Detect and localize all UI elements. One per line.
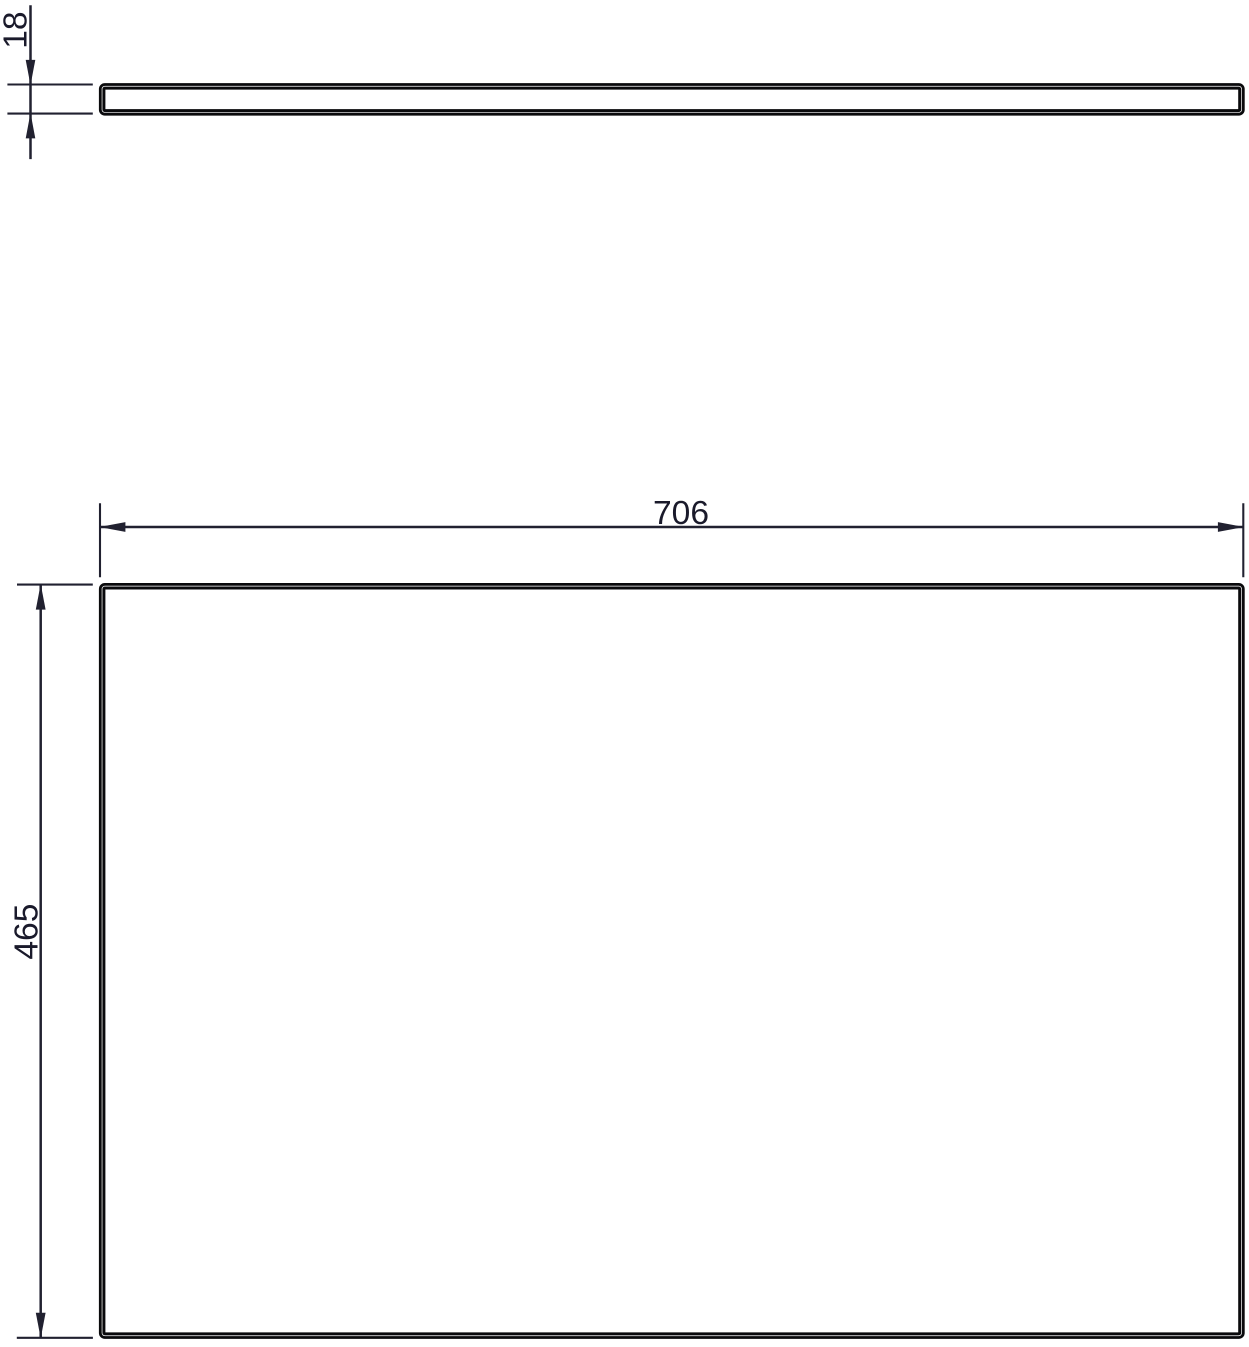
svg-text:706: 706 <box>653 495 709 532</box>
svg-text:465: 465 <box>9 904 46 960</box>
svg-text:18: 18 <box>0 11 35 48</box>
